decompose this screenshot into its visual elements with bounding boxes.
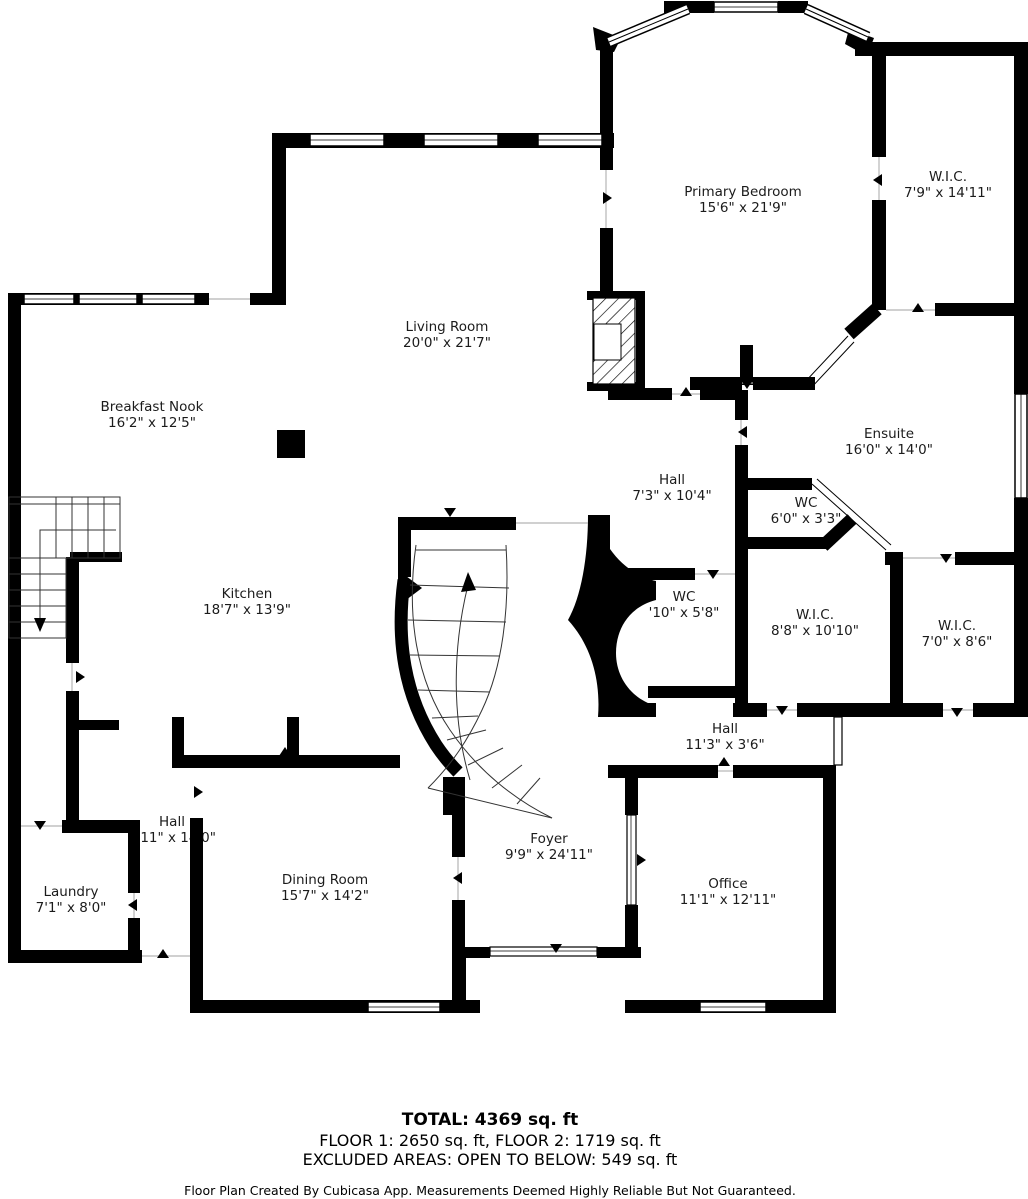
room-label-laundry: Laundry 7'1" x 8'0" [36, 884, 107, 916]
room-dims: 8'8" x 10'10" [771, 623, 859, 639]
room-dims: 7'3" x 10'4" [632, 488, 711, 504]
room-label-living-room: Living Room 20'0" x 21'7" [403, 319, 491, 351]
room-label-breakfast-nook: Breakfast Nook 16'2" x 12'5" [101, 399, 204, 431]
room-label-dining-room: Dining Room 15'7" x 14'2" [281, 872, 369, 904]
room-name: WC [649, 589, 720, 605]
room-dims: 18'7" x 13'9" [203, 602, 291, 618]
room-dims: 7'1" x 8'0" [36, 900, 107, 916]
room-dims: 16'0" x 14'0" [845, 442, 933, 458]
room-name: WC [771, 495, 842, 511]
room-name: Kitchen [203, 586, 291, 602]
room-name: W.I.C. [922, 618, 993, 634]
room-dims: 20'0" x 21'7" [403, 335, 491, 351]
room-dims: 15'7" x 14'2" [281, 888, 369, 904]
room-dims: 6'0" x 3'3" [771, 511, 842, 527]
room-name: Dining Room [281, 872, 369, 888]
room-name: Ensuite [845, 426, 933, 442]
room-name: Hall [128, 814, 216, 830]
room-label-hall-upper: Hall 7'3" x 10'4" [632, 472, 711, 504]
room-labels: Primary Bedroom 15'6" x 21'9" W.I.C. 7'9… [0, 0, 1028, 1199]
room-name: Primary Bedroom [684, 184, 802, 200]
disclaimer-text: Floor Plan Created By Cubicasa App. Meas… [0, 1183, 980, 1198]
room-label-wic-1: W.I.C. 7'9" x 14'11" [904, 169, 992, 201]
room-dims: 16'2" x 12'5" [101, 415, 204, 431]
room-dims: 11'3" x 3'6" [685, 737, 764, 753]
room-dims: 11'1" x 12'11" [680, 892, 777, 908]
room-dims: 6'11" x 14'0" [128, 830, 216, 846]
room-label-hall-mid: Hall 11'3" x 3'6" [685, 721, 764, 753]
room-label-wc-small: WC 6'0" x 3'3" [771, 495, 842, 527]
room-label-office: Office 11'1" x 12'11" [680, 876, 777, 908]
room-dims: '10" x 5'8" [649, 605, 720, 621]
room-dims: 7'9" x 14'11" [904, 185, 992, 201]
room-name: W.I.C. [771, 607, 859, 623]
room-label-hall-lower: Hall 6'11" x 14'0" [128, 814, 216, 846]
room-name: Foyer [505, 831, 593, 847]
room-label-ensuite: Ensuite 16'0" x 14'0" [845, 426, 933, 458]
room-name: Laundry [36, 884, 107, 900]
room-name: Hall [685, 721, 764, 737]
total-area-text: TOTAL: 4369 sq. ft [0, 1110, 980, 1130]
room-label-wic-2: W.I.C. 8'8" x 10'10" [771, 607, 859, 639]
room-name: Living Room [403, 319, 491, 335]
floor-plan-page: Primary Bedroom 15'6" x 21'9" W.I.C. 7'9… [0, 0, 1028, 1199]
room-label-foyer: Foyer 9'9" x 24'11" [505, 831, 593, 863]
floor-areas-text: FLOOR 1: 2650 sq. ft, FLOOR 2: 1719 sq. … [0, 1131, 980, 1150]
room-dims: 9'9" x 24'11" [505, 847, 593, 863]
room-label-wc-mid: WC '10" x 5'8" [649, 589, 720, 621]
room-label-kitchen: Kitchen 18'7" x 13'9" [203, 586, 291, 618]
room-name: Office [680, 876, 777, 892]
room-label-primary-bedroom: Primary Bedroom 15'6" x 21'9" [684, 184, 802, 216]
room-dims: 15'6" x 21'9" [684, 200, 802, 216]
room-dims: 7'0" x 8'6" [922, 634, 993, 650]
room-name: Hall [632, 472, 711, 488]
room-label-wic-3: W.I.C. 7'0" x 8'6" [922, 618, 993, 650]
room-name: W.I.C. [904, 169, 992, 185]
room-name: Breakfast Nook [101, 399, 204, 415]
excluded-areas-text: EXCLUDED AREAS: OPEN TO BELOW: 549 sq. f… [0, 1150, 980, 1169]
